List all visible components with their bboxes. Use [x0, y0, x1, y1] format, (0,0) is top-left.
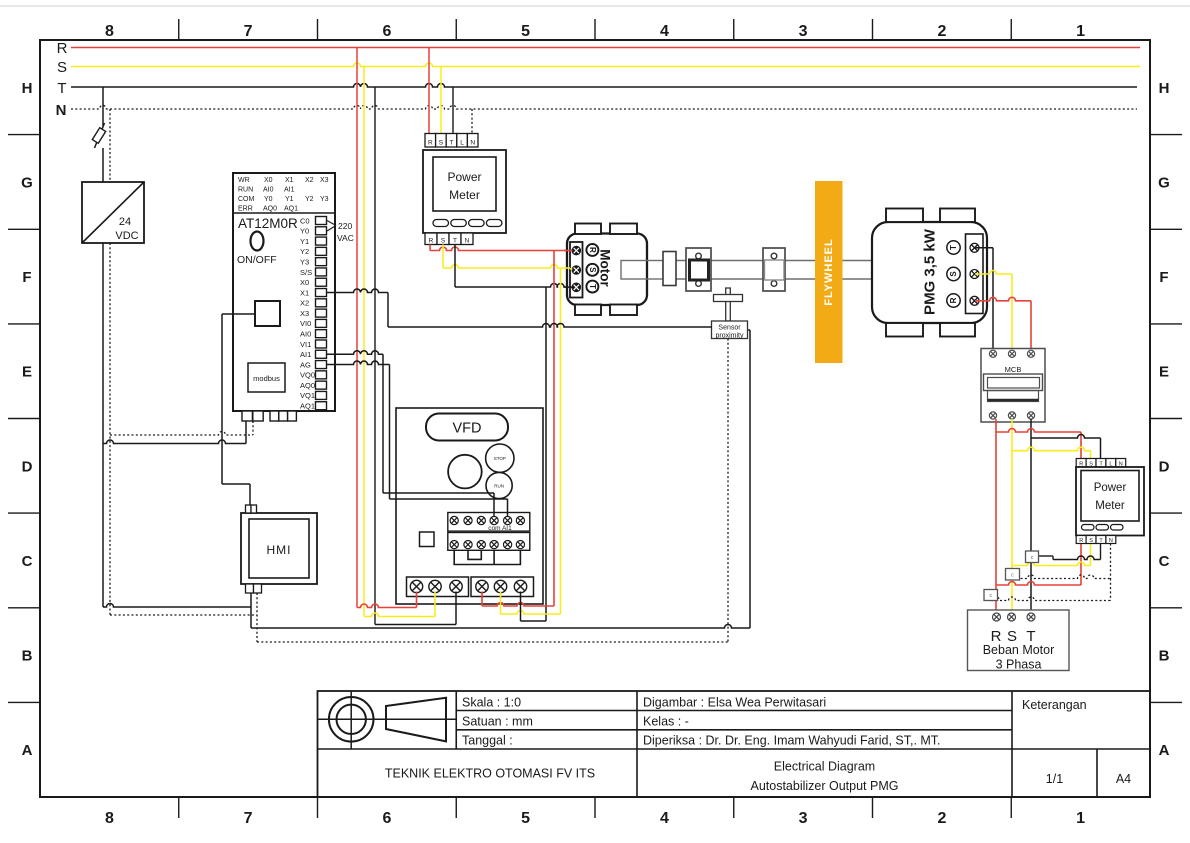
svg-text:VI1: VI1	[300, 340, 311, 349]
svg-text:COM: COM	[238, 196, 255, 203]
svg-text:com AI1: com AI1	[488, 525, 512, 532]
svg-text:VDC: VDC	[115, 230, 138, 242]
svg-text:Sensor: Sensor	[718, 325, 741, 332]
svg-text:VQ1: VQ1	[300, 391, 315, 400]
svg-text:N: N	[56, 102, 67, 119]
svg-text:2: 2	[937, 23, 946, 40]
svg-text:X0: X0	[300, 278, 309, 287]
svg-text:Y1: Y1	[300, 237, 309, 246]
svg-text:T: T	[450, 140, 454, 147]
svg-text:X0: X0	[264, 177, 273, 184]
svg-text:N: N	[1109, 538, 1113, 544]
svg-text:modbus: modbus	[253, 374, 280, 383]
svg-text:WR: WR	[238, 177, 250, 184]
svg-text:4: 4	[660, 810, 669, 827]
svg-text:5: 5	[521, 23, 530, 40]
svg-text:X2: X2	[300, 299, 309, 308]
svg-text:Satuan : mm: Satuan : mm	[462, 715, 533, 729]
svg-text:N: N	[465, 238, 470, 245]
svg-text:AQ0: AQ0	[263, 206, 277, 213]
svg-text:Y0: Y0	[300, 227, 309, 236]
svg-text:TEKNIK ELEKTRO OTOMASI FV ITS: TEKNIK ELEKTRO OTOMASI FV ITS	[385, 767, 595, 781]
svg-text:1: 1	[1076, 810, 1085, 827]
svg-text:AT12M0R: AT12M0R	[238, 216, 298, 231]
svg-text:Keterangan: Keterangan	[1022, 698, 1087, 712]
svg-text:Digambar : Elsa Wea Perwitasar: Digambar : Elsa Wea Perwitasari	[643, 696, 826, 710]
svg-text:2: 2	[937, 810, 946, 827]
svg-text:RUN: RUN	[238, 187, 253, 194]
svg-text:ON/OFF: ON/OFF	[237, 254, 277, 266]
svg-text:N: N	[470, 140, 475, 147]
svg-text:S: S	[1089, 538, 1093, 544]
svg-text:HMI: HMI	[267, 543, 292, 557]
svg-text:VAC: VAC	[337, 233, 354, 243]
svg-text:X1: X1	[300, 288, 309, 297]
svg-text:S/S: S/S	[300, 268, 312, 277]
svg-text:R: R	[949, 297, 958, 303]
svg-text:T: T	[453, 238, 457, 245]
svg-text:AQ0: AQ0	[300, 381, 315, 390]
svg-text:A: A	[22, 742, 33, 759]
svg-text:6: 6	[382, 23, 391, 40]
svg-text:R: R	[57, 40, 68, 57]
svg-text:VFD: VFD	[453, 421, 482, 437]
svg-text:H: H	[22, 80, 33, 97]
svg-text:R: R	[428, 140, 433, 147]
svg-text:220: 220	[338, 221, 352, 231]
svg-text:AG: AG	[300, 360, 311, 369]
svg-text:MCB: MCB	[1005, 365, 1022, 374]
svg-text:C: C	[22, 553, 33, 570]
svg-text:3 Phasa: 3 Phasa	[996, 658, 1042, 672]
svg-text:Y3: Y3	[300, 257, 309, 266]
svg-text:F: F	[22, 269, 31, 286]
svg-text:3: 3	[799, 23, 808, 40]
svg-text:Diperiksa : Dr. Dr. Eng. Imam: Diperiksa : Dr. Dr. Eng. Imam Wahyudi Fa…	[643, 734, 941, 748]
svg-text:Skala : 1:0: Skala : 1:0	[462, 696, 521, 710]
svg-text:Power: Power	[1094, 482, 1127, 494]
svg-text:8: 8	[105, 810, 114, 827]
svg-text:Tanggal :: Tanggal :	[462, 734, 513, 748]
svg-text:STOP: STOP	[494, 456, 506, 461]
svg-text:Y0: Y0	[264, 196, 273, 203]
svg-text:Y2: Y2	[305, 196, 314, 203]
svg-text:D: D	[22, 458, 33, 475]
svg-text:X1: X1	[285, 177, 294, 184]
svg-text:Electrical Diagram: Electrical Diagram	[774, 760, 875, 774]
svg-text:Power: Power	[447, 170, 481, 184]
svg-text:T: T	[57, 80, 66, 97]
svg-text:7: 7	[244, 810, 253, 827]
svg-text:8: 8	[105, 23, 114, 40]
svg-text:AI1: AI1	[300, 350, 311, 359]
svg-text:R: R	[1079, 538, 1083, 544]
svg-text:RUN: RUN	[494, 484, 504, 489]
svg-text:5: 5	[521, 810, 530, 827]
svg-text:B: B	[1159, 648, 1170, 665]
svg-text:C0: C0	[300, 216, 310, 225]
svg-text:X3: X3	[320, 177, 329, 184]
svg-text:H: H	[1159, 80, 1170, 97]
svg-text:S: S	[439, 140, 444, 147]
svg-text:Meter: Meter	[449, 188, 480, 202]
svg-text:Kelas : -: Kelas : -	[643, 715, 689, 729]
svg-text:G: G	[1158, 174, 1170, 191]
svg-text:A: A	[1159, 742, 1170, 759]
svg-text:4: 4	[660, 23, 669, 40]
svg-text:VQ0: VQ0	[300, 371, 315, 380]
svg-text:D: D	[1159, 458, 1170, 475]
svg-text:A4: A4	[1116, 772, 1131, 786]
svg-text:Y2: Y2	[300, 247, 309, 256]
svg-text:T: T	[949, 245, 958, 250]
svg-text:B: B	[22, 648, 33, 665]
svg-text:S: S	[441, 238, 446, 245]
svg-text:T: T	[588, 284, 597, 289]
svg-text:X2: X2	[305, 177, 314, 184]
svg-text:Y3: Y3	[320, 196, 329, 203]
svg-text:S: S	[588, 267, 597, 273]
svg-text:AI1: AI1	[284, 187, 295, 194]
svg-text:ERR: ERR	[238, 206, 253, 213]
svg-text:proximity: proximity	[715, 333, 744, 340]
svg-text:Beban Motor: Beban Motor	[983, 643, 1055, 657]
svg-text:Autostabilizer Output PMG: Autostabilizer Output PMG	[751, 779, 899, 793]
svg-text:S: S	[949, 271, 958, 277]
svg-text:Meter: Meter	[1095, 500, 1125, 512]
svg-text:L: L	[460, 140, 464, 147]
svg-text:1: 1	[1076, 23, 1085, 40]
svg-text:FLYWHEEL: FLYWHEEL	[823, 238, 835, 306]
svg-text:Motor: Motor	[598, 249, 613, 287]
svg-text:AQ1: AQ1	[300, 402, 315, 411]
svg-text:X3: X3	[300, 309, 309, 318]
svg-text:3: 3	[799, 810, 808, 827]
svg-text:E: E	[1159, 364, 1169, 381]
svg-text:AI0: AI0	[300, 329, 311, 338]
svg-text:7: 7	[244, 23, 253, 40]
svg-text:1/1: 1/1	[1046, 772, 1063, 786]
svg-text:F: F	[1159, 269, 1168, 286]
svg-text:R: R	[429, 238, 434, 245]
svg-text:S: S	[57, 59, 67, 76]
svg-text:G: G	[21, 174, 33, 191]
svg-text:VI0: VI0	[300, 319, 311, 328]
svg-text:PMG 3,5 kW: PMG 3,5 kW	[922, 228, 939, 315]
svg-text:E: E	[22, 364, 32, 381]
svg-text:6: 6	[382, 810, 391, 827]
svg-text:24: 24	[119, 216, 131, 228]
svg-text:AI0: AI0	[263, 187, 274, 194]
svg-text:R: R	[588, 247, 597, 253]
svg-text:AQ1: AQ1	[284, 206, 298, 213]
svg-text:Y1: Y1	[285, 196, 294, 203]
svg-text:C: C	[1159, 553, 1170, 570]
